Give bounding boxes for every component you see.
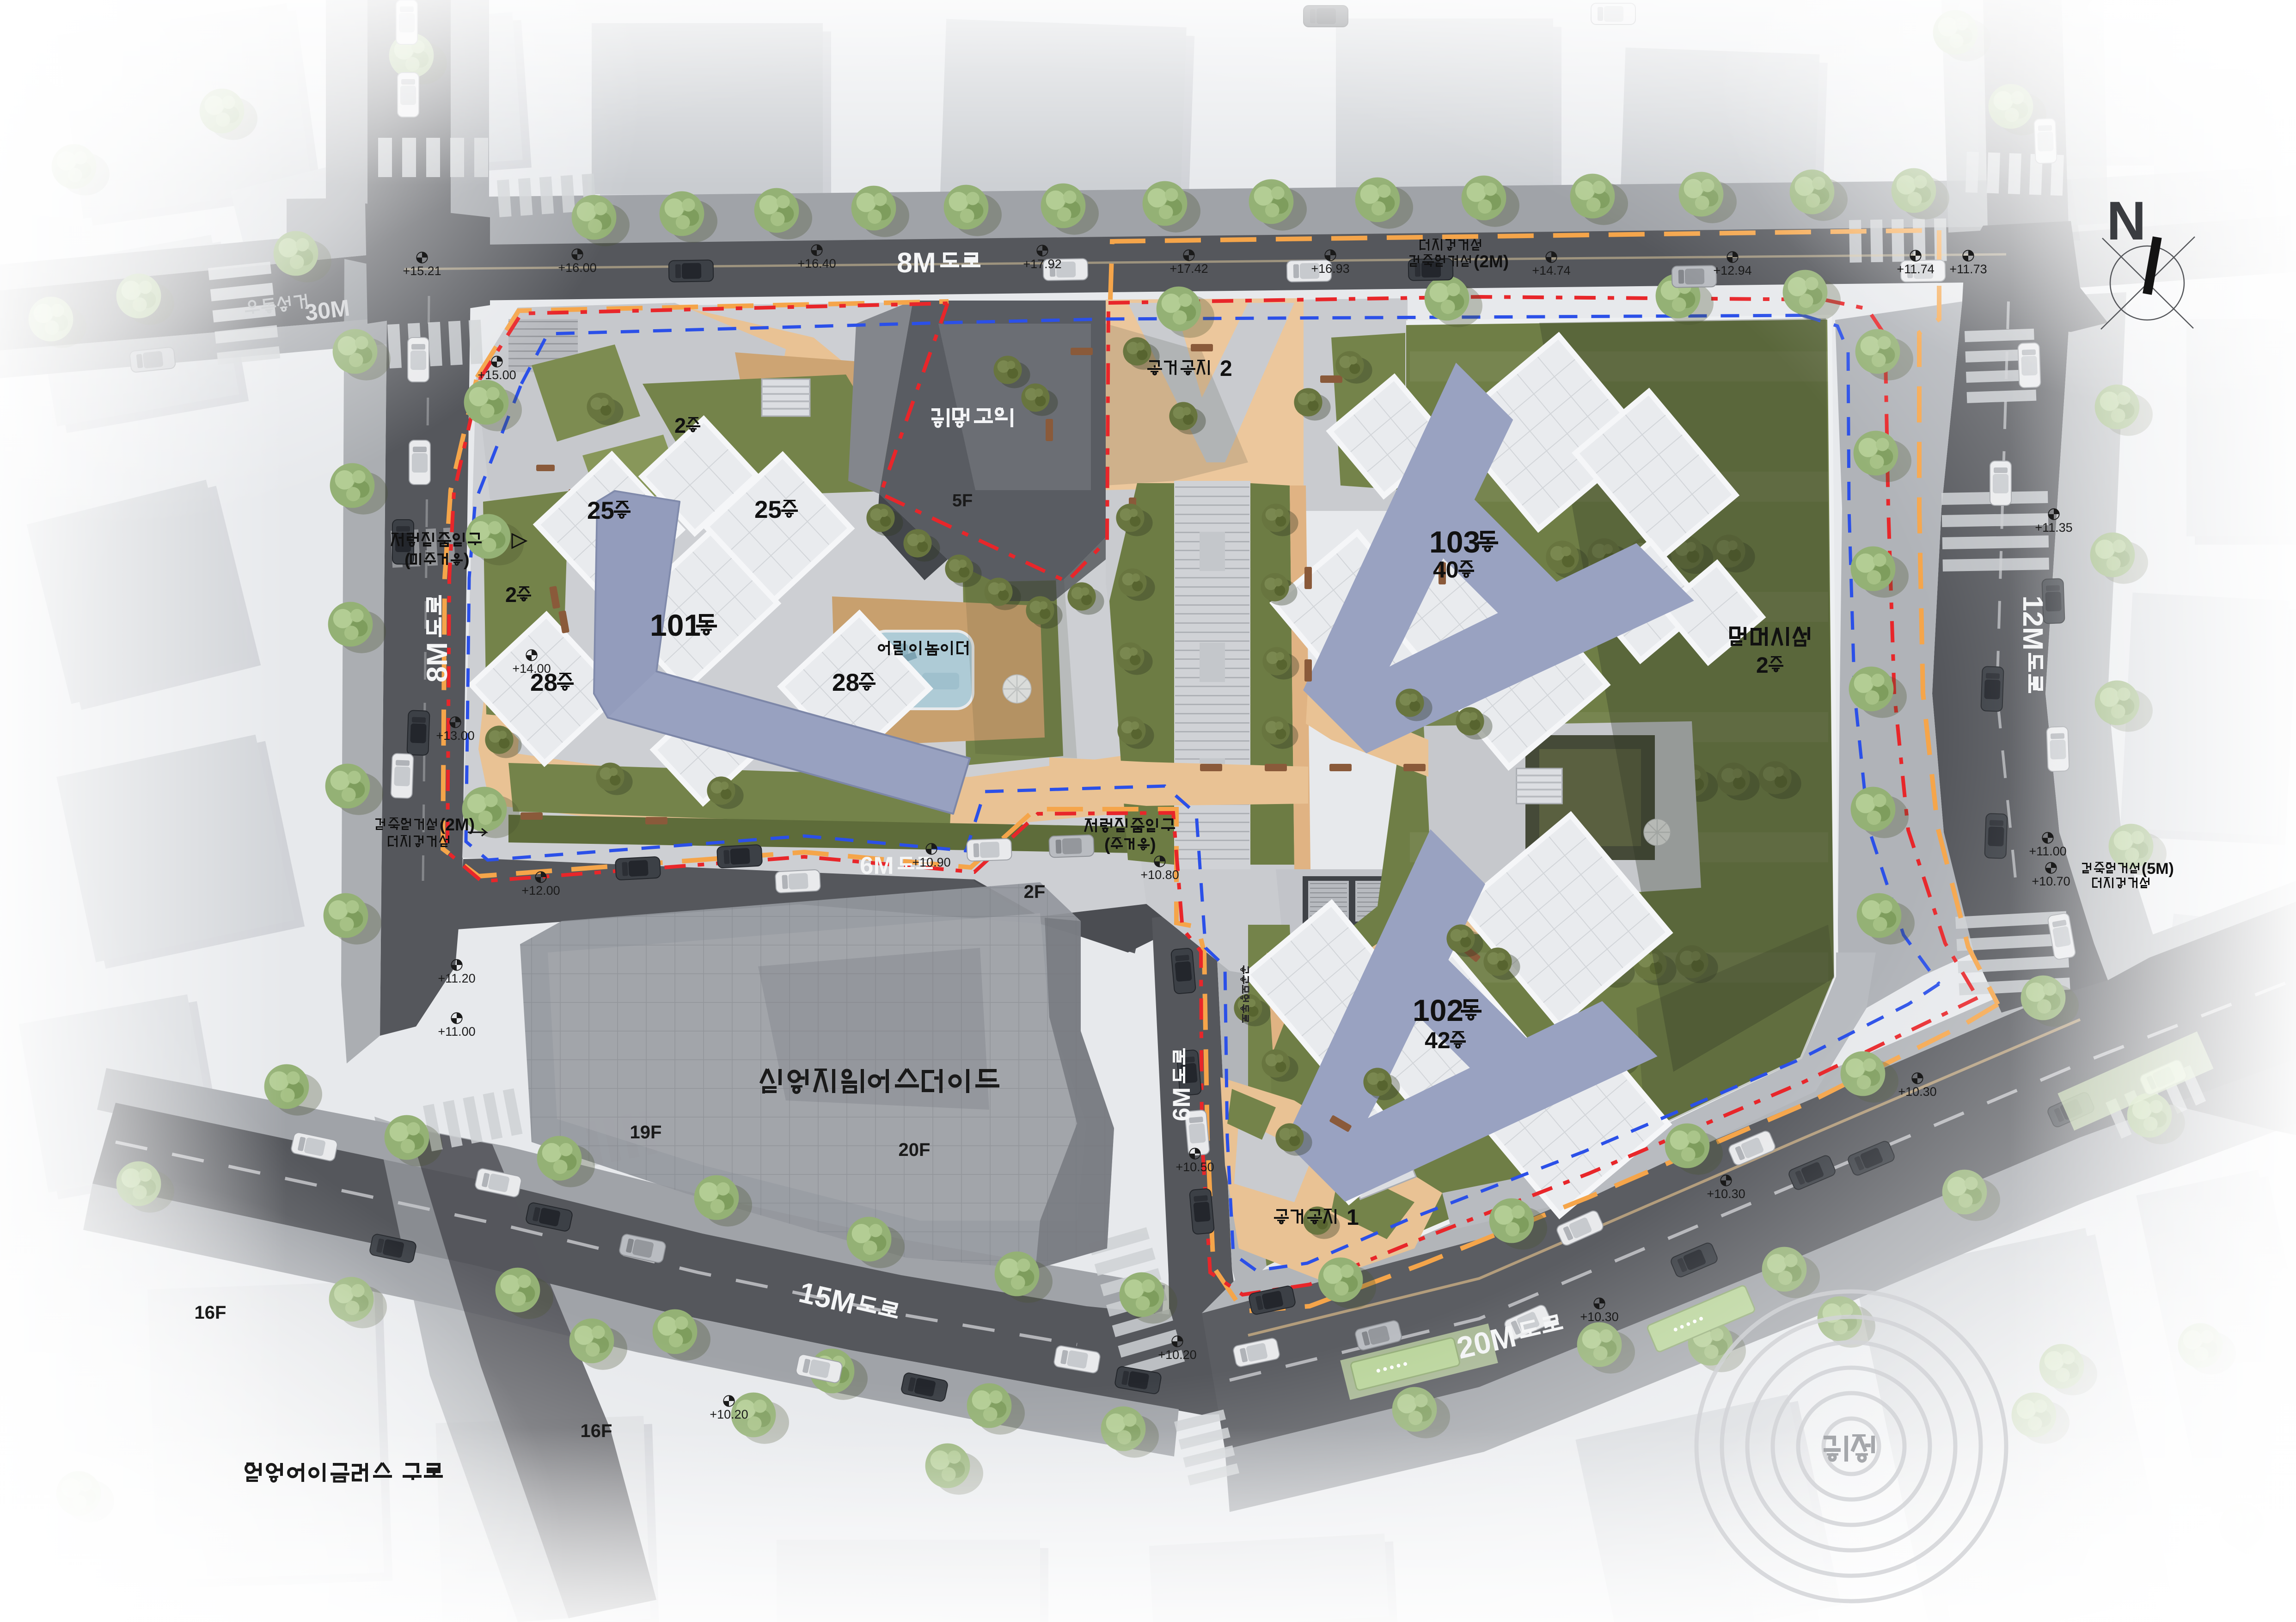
svg-text:42: 42 bbox=[1425, 1027, 1451, 1053]
svg-text:+17.42: +17.42 bbox=[1169, 262, 1208, 276]
svg-text:+10.30: +10.30 bbox=[1898, 1085, 1936, 1099]
svg-text:16F: 16F bbox=[581, 1421, 612, 1441]
svg-text:+13.00: +13.00 bbox=[436, 729, 474, 743]
svg-text:16F: 16F bbox=[195, 1303, 227, 1323]
svg-text:+12.94: +12.94 bbox=[1713, 264, 1751, 277]
svg-text:+11.00: +11.00 bbox=[2029, 844, 2066, 858]
svg-text:): ) bbox=[464, 550, 470, 570]
svg-text:103: 103 bbox=[1429, 525, 1480, 559]
svg-text:+15.00: +15.00 bbox=[478, 368, 516, 382]
svg-text:+10.50: +10.50 bbox=[1176, 1160, 1214, 1174]
svg-text:+14.00: +14.00 bbox=[512, 662, 551, 676]
svg-text:25: 25 bbox=[587, 497, 614, 524]
svg-text:+16.93: +16.93 bbox=[1311, 262, 1349, 276]
svg-text:+10.80: +10.80 bbox=[1140, 868, 1179, 882]
svg-text:+10.70: +10.70 bbox=[2032, 874, 2070, 888]
svg-text:+16.00: +16.00 bbox=[558, 261, 596, 275]
svg-text:+10.20: +10.20 bbox=[1158, 1348, 1196, 1362]
svg-text:8M: 8M bbox=[421, 642, 453, 682]
svg-text:+14.74: +14.74 bbox=[1532, 264, 1570, 277]
svg-text:6M: 6M bbox=[860, 852, 894, 879]
svg-text:6M: 6M bbox=[1168, 1087, 1195, 1121]
svg-text:25: 25 bbox=[754, 496, 782, 523]
svg-text:+16.40: +16.40 bbox=[797, 257, 836, 270]
svg-text:30M: 30M bbox=[303, 295, 351, 326]
svg-text:+10.20: +10.20 bbox=[710, 1407, 748, 1421]
svg-text:): ) bbox=[1150, 835, 1156, 854]
svg-text:8M: 8M bbox=[897, 247, 936, 278]
svg-text:(: ( bbox=[404, 550, 410, 570]
svg-text:+10.30: +10.30 bbox=[1707, 1187, 1745, 1201]
svg-text:2: 2 bbox=[674, 414, 686, 437]
svg-text:+11.74: +11.74 bbox=[1897, 262, 1934, 276]
svg-text:+10.90: +10.90 bbox=[912, 855, 950, 869]
svg-text:(: ( bbox=[1104, 835, 1110, 854]
svg-text:(5M): (5M) bbox=[2142, 860, 2174, 878]
svg-text:28: 28 bbox=[832, 669, 859, 696]
svg-text:2: 2 bbox=[1756, 653, 1769, 678]
svg-text:+11.73: +11.73 bbox=[1949, 262, 1987, 276]
svg-text:101: 101 bbox=[650, 608, 701, 642]
svg-text:+11.20: +11.20 bbox=[438, 971, 475, 985]
svg-text:1: 1 bbox=[1347, 1205, 1359, 1230]
svg-text:19F: 19F bbox=[630, 1122, 662, 1143]
svg-text:2: 2 bbox=[1220, 356, 1232, 381]
svg-text:+11.00: +11.00 bbox=[438, 1025, 475, 1038]
svg-text:12M: 12M bbox=[2017, 596, 2049, 651]
svg-text:102: 102 bbox=[1413, 993, 1463, 1027]
svg-text:(2M): (2M) bbox=[440, 815, 475, 834]
svg-text:+17.92: +17.92 bbox=[1023, 257, 1061, 271]
svg-text:2F: 2F bbox=[1024, 882, 1046, 902]
svg-text:+10.30: +10.30 bbox=[1580, 1310, 1618, 1324]
svg-text:20F: 20F bbox=[899, 1140, 931, 1160]
svg-text:5F: 5F bbox=[952, 491, 973, 510]
svg-text:40: 40 bbox=[1433, 557, 1459, 583]
svg-text:N: N bbox=[2106, 190, 2146, 252]
svg-text:+11.35: +11.35 bbox=[2035, 521, 2072, 535]
svg-text:2: 2 bbox=[505, 583, 517, 607]
svg-text:+15.21: +15.21 bbox=[403, 264, 441, 278]
svg-text:+12.00: +12.00 bbox=[521, 884, 560, 897]
svg-text:(2M): (2M) bbox=[1474, 252, 1509, 271]
